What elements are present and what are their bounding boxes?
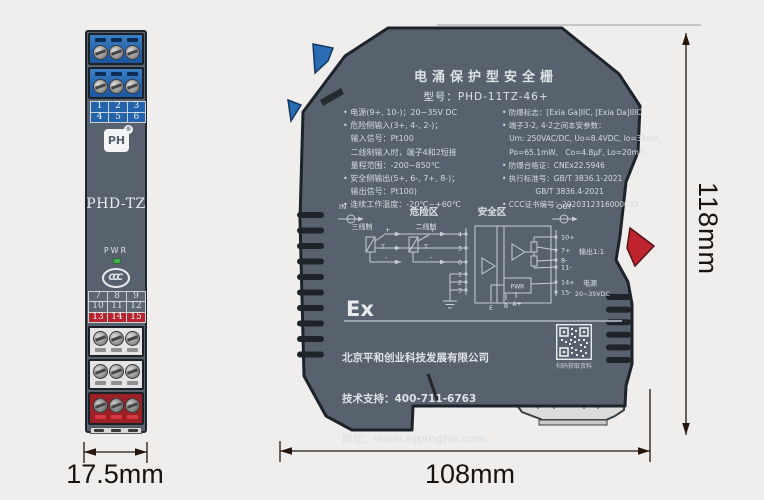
- support-line: 技术支持：400-711-6763: [342, 393, 489, 407]
- output-ratio-label: 输出1:1: [579, 247, 604, 256]
- screw: [93, 364, 108, 379]
- screw: [125, 364, 140, 379]
- brand-logo: PH ®: [104, 129, 129, 152]
- svg-text:A+: A+: [512, 301, 521, 308]
- hazardous-zone-label: 危险区: [409, 206, 439, 218]
- spec-line: • 执行标准号：GB/T 3836.1-2021: [502, 172, 661, 185]
- bottom-flange: [90, 427, 142, 434]
- terminal-number: 15: [127, 313, 145, 322]
- spec-line: 量程范围：-200~850℃: [343, 159, 461, 172]
- wire-slot: [127, 72, 138, 76]
- wire-slot: [111, 381, 122, 385]
- screw: [125, 45, 140, 60]
- pwr-label: PWR: [85, 246, 147, 255]
- power-range-label: 20~35VDC: [575, 291, 610, 298]
- screw: [125, 398, 140, 413]
- spec-line: 输出信号：Pt100): [343, 185, 461, 198]
- three-wire-label: 三线制: [352, 222, 373, 231]
- front-model-label: PHD-TZ: [85, 196, 147, 212]
- screws: [92, 331, 140, 346]
- safe-bus: 10+ 7+ 8- 11- 14+ 15- 输出1:1 电源 20~35VDC: [555, 230, 611, 298]
- qr-code-icon: [556, 324, 592, 360]
- screw: [125, 79, 140, 94]
- power-led-indicator: [113, 258, 121, 264]
- spec-line: • 电源(9+, 10-)；20~35V DC: [343, 106, 461, 119]
- wire-slot: [128, 429, 138, 432]
- wire-slot: [127, 38, 138, 42]
- out-terminal-label: 7+: [561, 246, 571, 254]
- terminal-number: 6: [128, 113, 145, 123]
- specs-left: • 电源(9+, 10-)；20~35V DC • 危险侧输入(3+, 4-, …: [343, 106, 461, 212]
- screw: [93, 45, 108, 60]
- terminal-number: 1: [91, 102, 108, 112]
- bus-terminal-label: 6: [458, 258, 462, 266]
- out-terminal-label: 10+: [561, 233, 575, 241]
- dim-label-118mm: 118mm: [692, 182, 723, 275]
- out-terminal-label: 14+: [561, 278, 575, 286]
- dim-label-108mm: 108mm: [385, 459, 555, 490]
- footer-block: 北京平和创业科技发展有限公司 技术支持：400-711-6763 网址：www.…: [342, 325, 489, 474]
- wire-slots: [92, 415, 140, 419]
- isolator-block: PWR: [475, 226, 556, 303]
- spec-line: • 安全侧输出(5+, 6-, 7+, 8-)；: [343, 172, 461, 185]
- svg-text:PWR: PWR: [511, 284, 525, 291]
- ex-mark: Ex: [346, 297, 374, 321]
- qr-caption: 扫码获取资料: [549, 361, 599, 370]
- wire-slots: [92, 72, 140, 76]
- screw: [93, 79, 108, 94]
- brand-logo-text: PH: [108, 134, 125, 147]
- spec-line: GB/T 3836.4-2021: [502, 185, 661, 198]
- bus-terminal-label: 3: [458, 244, 462, 252]
- wire-slot: [127, 348, 138, 352]
- screw: [109, 398, 124, 413]
- svg-text:B: B: [504, 303, 508, 310]
- out-terminal-label: 15-: [561, 288, 572, 296]
- product-dimension-drawing: 1 2 3 4 5 6 PH ® PHD-TZ PWR CCC 7 8 9 10…: [0, 0, 764, 500]
- terminal-number: 14: [108, 313, 126, 322]
- wire-slots: [92, 381, 140, 385]
- terminal-number: 12: [127, 302, 145, 311]
- terminal-block-red: [88, 392, 144, 425]
- amplifier-icon: [512, 244, 525, 260]
- safe-zone-label: 安全区: [478, 206, 507, 218]
- terminal-number: 11: [108, 302, 126, 311]
- wire-slot: [111, 415, 122, 419]
- out-icon: OUT: [552, 203, 578, 223]
- terminal-block-blue-2: [88, 67, 144, 99]
- bus-terminal-label: 4: [458, 230, 462, 238]
- wire-slot: [111, 348, 122, 352]
- screw: [93, 398, 108, 413]
- ground-icon: [443, 301, 457, 308]
- spec-line: 输入信号：Pt100: [343, 132, 461, 145]
- wire-slot: [127, 415, 138, 419]
- svg-text:OUT: OUT: [557, 203, 573, 211]
- wire-slot: [111, 72, 122, 76]
- screw: [93, 331, 108, 346]
- wire-slots: [92, 348, 140, 352]
- in-icon: IN: [338, 203, 364, 223]
- company-name: 北京平和创业科技发展有限公司: [342, 352, 489, 366]
- wire-slot: [111, 429, 121, 432]
- terminal-number: 3: [128, 102, 145, 112]
- svg-text:-: -: [430, 254, 433, 262]
- terminal-number: 13: [89, 313, 107, 322]
- svg-text:+: +: [430, 226, 435, 234]
- terminal-number: 9: [127, 292, 145, 301]
- circuit-diagram: IN 危险区 安全区 OUT 三线制 二线制 T + - T +: [333, 198, 635, 328]
- dim-label-17-5mm: 17.5mm: [50, 459, 180, 490]
- wire-slot: [94, 429, 104, 432]
- ground-terminals: E B A+: [489, 292, 521, 312]
- wire-slot: [95, 72, 106, 76]
- screw: [109, 45, 124, 60]
- ccc-mark-icon: CCC: [102, 268, 130, 288]
- dim-line-118: [682, 33, 690, 435]
- out-terminal-label: 11-: [561, 263, 572, 271]
- power-label: 电源: [583, 279, 597, 288]
- terminal-number: 2: [109, 102, 126, 112]
- screws: [92, 79, 140, 94]
- registered-mark-icon: ®: [124, 125, 133, 134]
- svg-text:T: T: [380, 243, 385, 251]
- svg-text:-: -: [385, 254, 388, 262]
- terminal-number: 8: [108, 292, 126, 301]
- amplifier-icon: [482, 258, 495, 274]
- specs-right: • 防爆标志：[Exia Ga]IIC, [Exia Da]IIIC • 端子3…: [502, 106, 661, 212]
- website-line: 网址：www.bjpinghe.com: [342, 433, 489, 447]
- spec-line: Um: 250VAC/DC, Uo=8.4VDC, Io=31mA,: [502, 132, 661, 145]
- rtd-sensor-two-wire: T + -: [409, 226, 446, 264]
- spec-line: • 防爆合格证：CNEx22.5946: [502, 159, 661, 172]
- screw: [109, 331, 124, 346]
- terminal-number: 7: [89, 292, 107, 301]
- svg-text:E: E: [489, 305, 493, 312]
- svg-text:IN: IN: [339, 203, 346, 211]
- spec-line: • 防爆标志：[Exia Ga]IIC, [Exia Da]IIIC: [502, 106, 661, 119]
- spec-line: • 危险侧输入(3+, 4-, 2-)；: [343, 119, 461, 132]
- screw: [109, 364, 124, 379]
- wire-slot: [95, 38, 106, 42]
- rtd-sensor-three-wire: T + -: [366, 226, 401, 264]
- terminal-number: 10: [89, 302, 107, 311]
- screws: [92, 398, 140, 413]
- terminal-number-grid-bottom: 7 8 9 10 11 12 13 14 15: [88, 291, 146, 323]
- spec-line: 二线制输入时，端子4和2短接: [343, 146, 461, 159]
- wire-slot: [127, 381, 138, 385]
- terminal-number: 4: [91, 113, 108, 123]
- screws: [92, 45, 140, 60]
- wire-slots: [92, 38, 140, 42]
- svg-text:+: +: [385, 226, 390, 234]
- terminal-number-grid-top: 1 2 3 4 5 6: [90, 101, 146, 123]
- wire-slot: [95, 415, 106, 419]
- terminal-block-blue-1: [88, 33, 144, 65]
- terminal-block-white-1: [88, 326, 144, 357]
- wire-slot: [95, 348, 106, 352]
- spec-line: • 端子3-2, 4-2之间本安参数：: [502, 119, 661, 132]
- side-label-model: 型号：PHD-11TZ-46+: [340, 89, 632, 104]
- screws: [92, 364, 140, 379]
- spec-line: Po=65.1mW, Co=4.8μF, Lo=20mH.: [502, 146, 661, 159]
- svg-text:T: T: [423, 243, 428, 251]
- wire-slot: [95, 381, 106, 385]
- terminal-number: 5: [109, 113, 126, 123]
- side-label-title: 电涌保护型安全栅: [340, 66, 632, 85]
- divider: [344, 320, 622, 322]
- screw: [125, 331, 140, 346]
- screw: [109, 79, 124, 94]
- hazard-bus: 4 3 6 1 2 3: [401, 228, 467, 308]
- wire-slot: [111, 38, 122, 42]
- terminal-block-white-2: [88, 359, 144, 390]
